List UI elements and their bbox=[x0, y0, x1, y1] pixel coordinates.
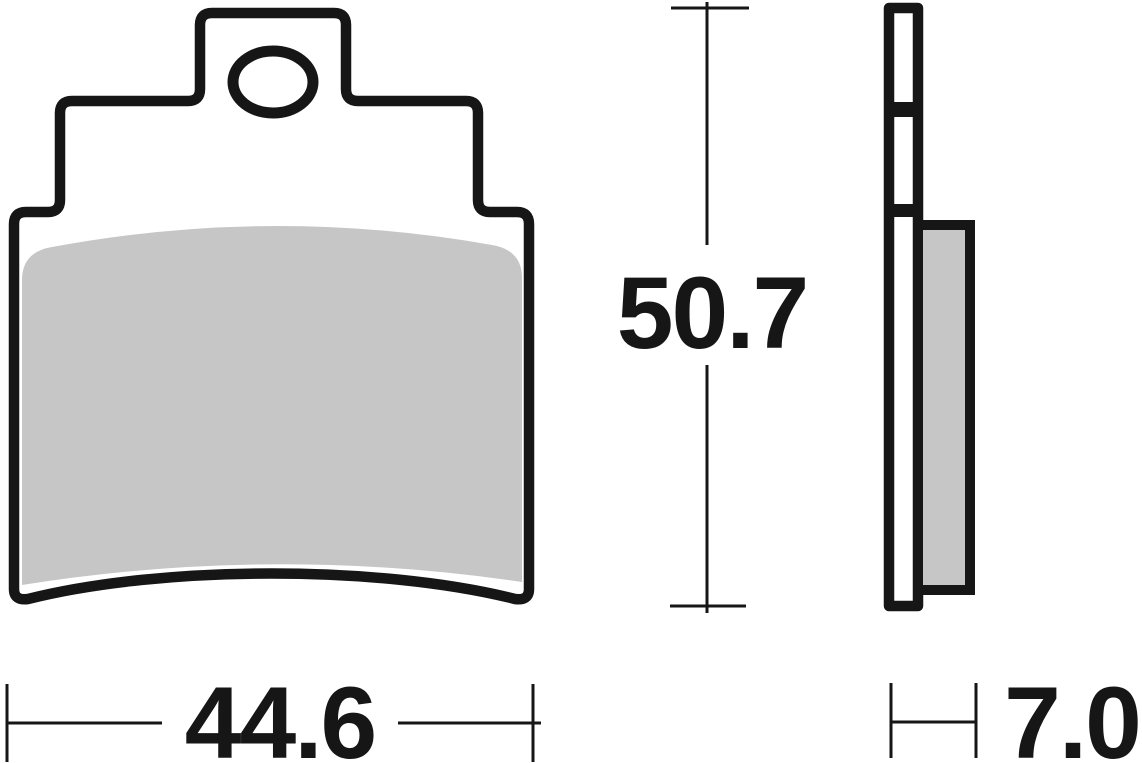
brake-pad-technical-drawing: 44.6 50.7 7.0 bbox=[0, 0, 1142, 763]
mounting-hole bbox=[233, 51, 313, 113]
friction-material-front bbox=[22, 226, 522, 585]
technical-drawing-page: 44.6 50.7 7.0 bbox=[0, 0, 1142, 763]
width-dimension: 44.6 bbox=[7, 666, 541, 763]
thickness-dimension-label: 7.0 bbox=[1004, 666, 1140, 763]
thickness-dimension: 7.0 bbox=[891, 666, 1140, 763]
plate-step-divider-bottom bbox=[884, 204, 923, 217]
height-dimension-label: 50.7 bbox=[617, 256, 808, 370]
friction-material-side bbox=[918, 225, 970, 590]
plate-step-divider-top bbox=[884, 102, 923, 117]
height-dimension: 50.7 bbox=[617, 2, 808, 613]
brake-pad-front-view bbox=[14, 13, 529, 599]
brake-pad-side-view bbox=[884, 8, 970, 606]
width-dimension-label: 44.6 bbox=[185, 666, 376, 763]
